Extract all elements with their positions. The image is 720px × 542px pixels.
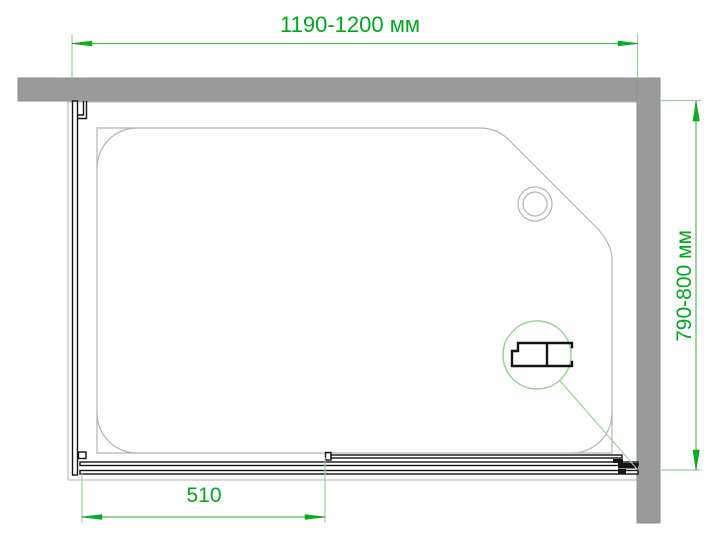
shower-tray-rim xyxy=(68,102,638,480)
sliding-door-panel xyxy=(331,455,622,458)
front-bottom-rail xyxy=(80,471,638,475)
depth-dimension-label: 790-800 мм xyxy=(673,230,697,342)
fixed-segment-dimension-label: 510 xyxy=(186,484,221,508)
front-top-rail xyxy=(80,462,638,466)
right-wall xyxy=(637,78,660,523)
shower-enclosure-drawing: 1190-1200 мм 790-800 мм 510 xyxy=(0,0,720,542)
drawing-canvas xyxy=(0,0,720,542)
top-wall xyxy=(18,78,660,101)
side-glass-panel xyxy=(73,101,78,475)
width-dimension-label: 1190-1200 мм xyxy=(280,12,420,38)
